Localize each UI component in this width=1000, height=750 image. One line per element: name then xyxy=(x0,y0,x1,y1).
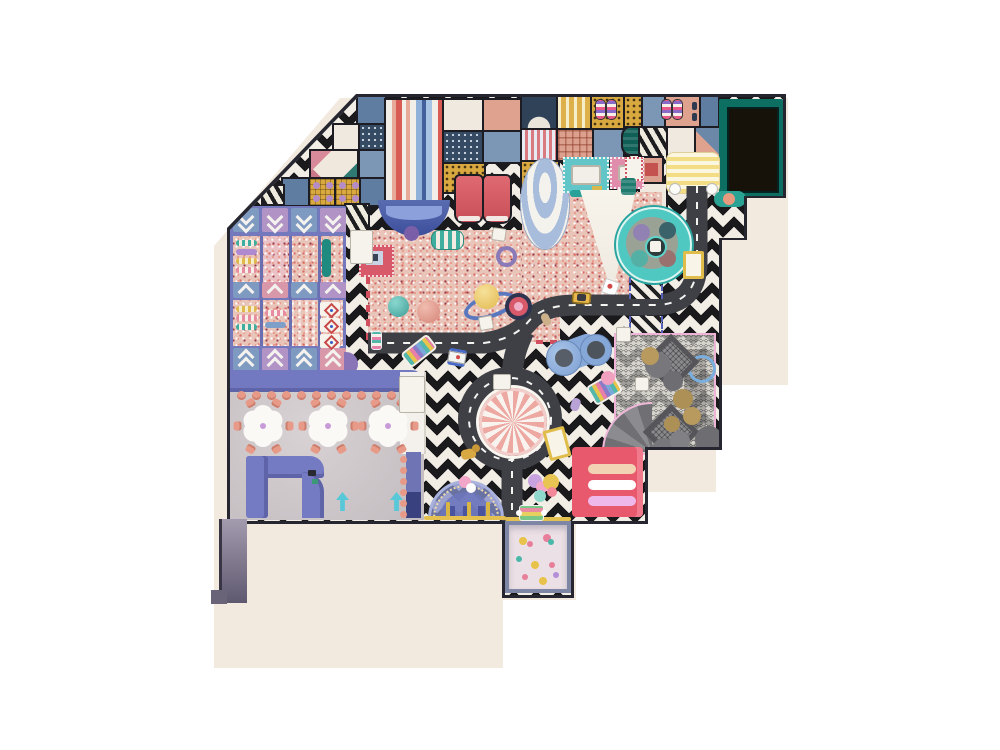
station-pad xyxy=(399,376,425,413)
bench-stool xyxy=(267,391,276,400)
rainbow-ladder xyxy=(400,333,438,368)
net-boulder xyxy=(664,416,680,432)
cafe-table xyxy=(318,416,338,436)
bench-stool xyxy=(372,391,381,400)
toddler-toy xyxy=(539,577,547,585)
toddler-toy xyxy=(516,556,522,562)
cafe-chair xyxy=(369,443,381,454)
balloon-deco xyxy=(547,487,557,497)
bench-stool xyxy=(312,391,321,400)
knob xyxy=(692,113,697,121)
cafe-chair xyxy=(410,422,418,431)
net-boulder xyxy=(641,347,659,365)
toddler-toy xyxy=(519,537,527,545)
salmon-ball xyxy=(417,300,440,323)
balloon-deco xyxy=(466,483,476,493)
balloon-deco xyxy=(534,490,546,502)
white-pad xyxy=(616,327,631,342)
pink-cart xyxy=(371,331,382,350)
road-post xyxy=(670,184,680,194)
police-car xyxy=(447,348,468,368)
bench-stool xyxy=(327,391,336,400)
cafe-chair xyxy=(270,443,282,454)
balloon-deco xyxy=(601,371,615,385)
cafe-chair xyxy=(358,422,366,431)
yellow-car xyxy=(572,291,592,304)
bench-stool xyxy=(387,391,396,400)
bench-stool xyxy=(357,391,366,400)
wall-stool xyxy=(400,500,407,507)
teal-ball xyxy=(388,296,409,317)
candy-roller xyxy=(607,100,616,119)
white-mat xyxy=(350,230,373,264)
lavender-scooter xyxy=(569,397,582,412)
toddler-toy xyxy=(549,562,555,568)
wall-stool xyxy=(400,467,407,474)
toy-dog xyxy=(460,448,477,461)
toll-gate xyxy=(683,251,704,279)
cafe-chair xyxy=(350,422,358,431)
teal-block xyxy=(621,178,636,195)
playground-floorplan xyxy=(0,0,1000,750)
cafe-chair xyxy=(244,443,256,454)
bench-stool xyxy=(252,391,261,400)
bench-stool xyxy=(342,391,351,400)
white-pad xyxy=(493,374,511,390)
toddler-toy xyxy=(527,541,533,547)
toddler-toy xyxy=(522,574,528,580)
bench-stool xyxy=(297,391,306,400)
toddler-toy xyxy=(553,572,559,578)
net-boulder xyxy=(673,389,693,409)
cafe-chair xyxy=(298,422,306,431)
toll-gate xyxy=(542,426,571,462)
toy-scooter xyxy=(540,312,553,327)
net-boulder xyxy=(683,407,701,425)
wall-stool xyxy=(400,456,407,463)
wall-stool xyxy=(400,511,407,518)
bench-stool xyxy=(237,391,246,400)
cafe-chair xyxy=(335,443,347,454)
cafe-chair xyxy=(233,422,241,431)
cafe-table xyxy=(253,416,273,436)
candy-roller xyxy=(673,100,682,119)
candy-roller xyxy=(596,100,605,119)
saturn-ball xyxy=(474,284,499,309)
bench-stool xyxy=(282,391,291,400)
cafe-chair xyxy=(309,443,321,454)
wall-stool xyxy=(400,478,407,485)
net-boulder xyxy=(663,371,683,391)
entry-arrow-icon xyxy=(336,492,349,511)
cafe-chair xyxy=(285,422,293,431)
candy-roller xyxy=(662,100,671,119)
wall-stool xyxy=(400,489,407,496)
road-post xyxy=(707,184,717,194)
toddler-toy xyxy=(548,539,554,545)
knob xyxy=(692,102,697,110)
striped-drum xyxy=(431,230,464,250)
white-pad xyxy=(491,227,507,242)
white-pad xyxy=(478,315,494,331)
white-pad xyxy=(635,377,649,391)
rainbow-booth xyxy=(519,505,544,521)
red-ring-toy xyxy=(505,293,532,320)
cafe-chair xyxy=(395,443,407,454)
toddler-toy xyxy=(531,561,539,569)
purple-ring xyxy=(494,244,520,270)
cafe-table xyxy=(378,416,398,436)
wall-remnant-foot xyxy=(211,590,227,604)
